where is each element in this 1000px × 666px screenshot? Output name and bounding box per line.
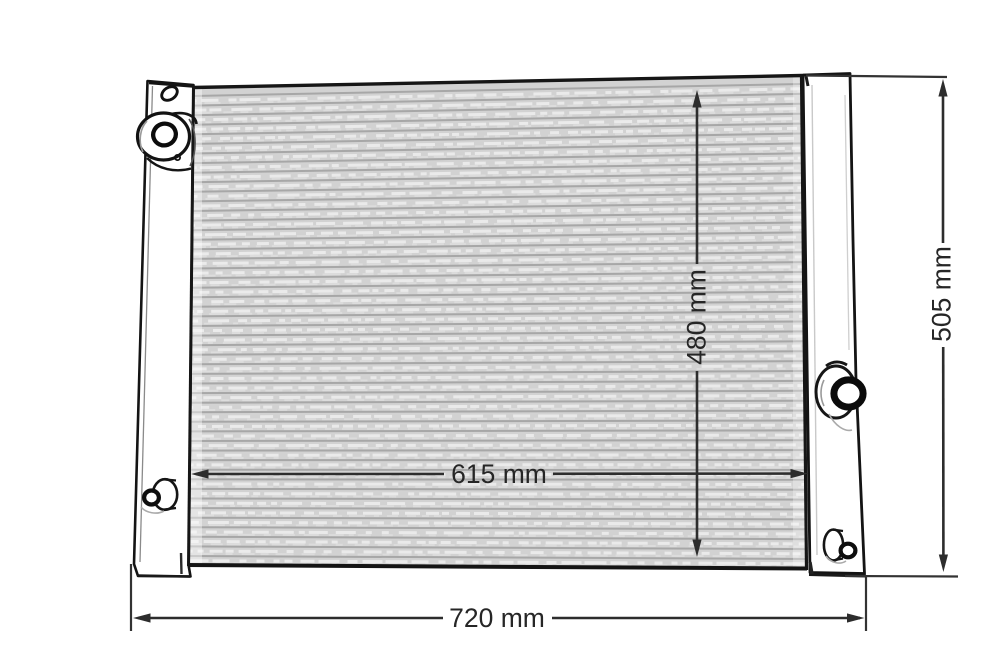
svg-text:480 mm: 480 mm	[682, 269, 712, 365]
svg-text:615 mm: 615 mm	[451, 459, 547, 489]
svg-text:720 mm: 720 mm	[449, 603, 545, 633]
svg-text:505 mm: 505 mm	[927, 246, 957, 342]
